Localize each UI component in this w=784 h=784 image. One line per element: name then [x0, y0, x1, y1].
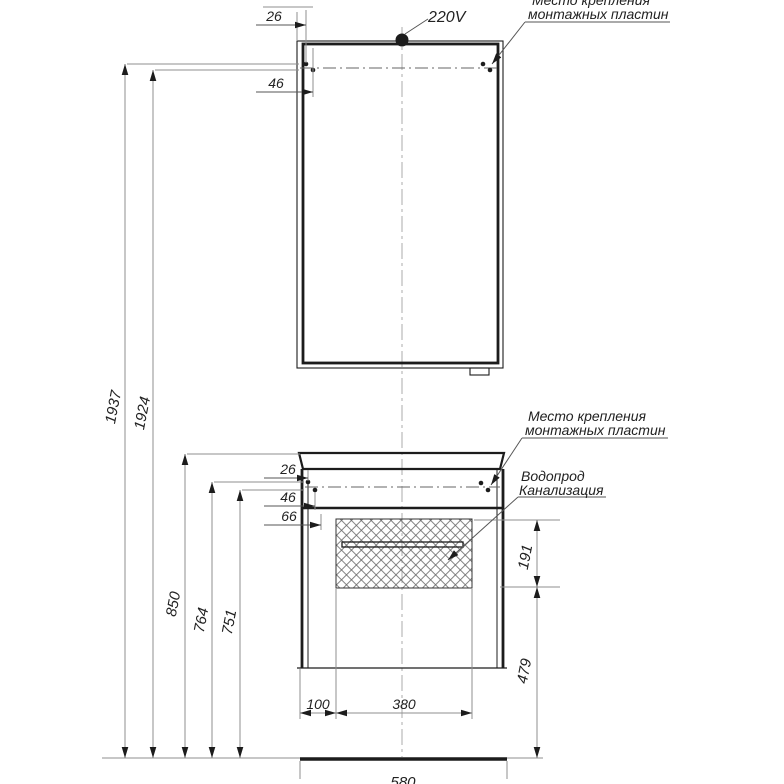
dim-label-46-top: 46	[268, 75, 284, 91]
drawing-page: 220V Место крепления монтажных пластин М…	[0, 0, 784, 784]
label-cabinet-mount-2: монтажных пластин	[525, 422, 666, 438]
power-outlet-point	[396, 34, 409, 47]
mirror-outer-body	[297, 41, 503, 368]
dim-label-66-bottom: 66	[281, 508, 297, 524]
mount-point	[313, 488, 318, 493]
label-220v: 220V	[427, 9, 467, 26]
label-mirror-mount-2: монтажных пластин	[528, 6, 669, 22]
technical-drawing: 220V Место крепления монтажных пластин М…	[0, 0, 784, 784]
dim-label-380: 380	[392, 696, 416, 712]
mirror-door-panel	[303, 44, 498, 363]
dim-label-580: 580	[390, 774, 416, 784]
mirror-bottom-switch	[470, 368, 489, 375]
mount-point	[481, 62, 486, 67]
dim-label-764: 764	[191, 606, 212, 634]
label-plumbing-2: Канализация	[519, 482, 604, 498]
leader-220v	[405, 19, 428, 34]
floor	[102, 758, 543, 779]
mount-point	[486, 488, 491, 493]
leader-cabinet-mount	[491, 438, 522, 485]
dim-label-1924: 1924	[131, 395, 154, 431]
dim-label-751: 751	[219, 608, 240, 636]
labels: 220V Место крепления монтажных пластин М…	[102, 0, 669, 784]
dim-label-850: 850	[163, 590, 185, 618]
dimension-lines	[125, 7, 560, 758]
mount-point	[488, 68, 493, 73]
dim-label-1937: 1937	[102, 388, 125, 425]
dim-label-46-bottom: 46	[280, 489, 296, 505]
mirror-cabinet	[297, 34, 503, 376]
dim-label-191: 191	[515, 543, 536, 571]
dim-label-26-top: 26	[265, 8, 282, 24]
mount-point	[479, 481, 484, 486]
dim-label-100: 100	[306, 696, 330, 712]
plumbing-service-zone-hatch	[336, 519, 472, 588]
dim-label-479: 479	[514, 657, 536, 685]
dim-label-26-bottom: 26	[279, 461, 296, 477]
